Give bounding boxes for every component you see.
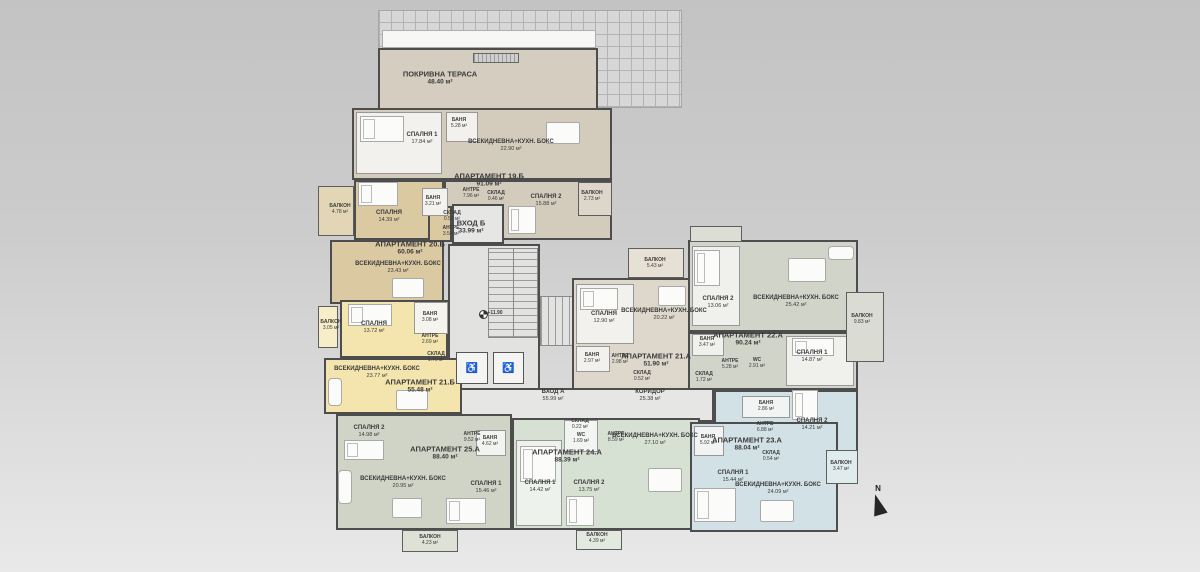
terrace-label-name: ПОКРИВНА ТЕРАСА xyxy=(403,70,477,79)
apt25-title-area: 88.40 м² xyxy=(410,454,480,462)
apt19-hall-label-area: 7.96 м² xyxy=(463,193,480,199)
apt21b-title: АПАРТАМЕНТ 21.Б55.48 м² xyxy=(385,378,455,395)
entrance-a-label-area: 55.99 м² xyxy=(542,396,565,403)
apt21a-storage-label-area: 0.52 м² xyxy=(633,376,651,382)
apt24-title-area: 88.39 м² xyxy=(532,457,602,465)
apt24-balcony-label: БАЛКОН4.39 м² xyxy=(586,532,607,544)
apt23-bath2-label: БАНЯ2.86 м² xyxy=(758,400,774,412)
apt23-bedroom1-label-name: СПАЛНЯ 1 xyxy=(718,470,749,477)
sofa-icon xyxy=(338,470,352,504)
apt22-wc-label-area: 2.91 м² xyxy=(749,363,765,369)
apt25-hall-label-area: 9.52 м² xyxy=(464,437,481,443)
apt22-bedroom2-label-name: СПАЛНЯ 2 xyxy=(703,296,734,303)
apt25-title-name: АПАРТАМЕНТ 25.А xyxy=(410,445,480,454)
apt21a-bedroom-label-name: СПАЛНЯ xyxy=(591,311,617,318)
level-label-name: +11.90 xyxy=(487,310,502,316)
apt23-hall-label-area: 6.88 м² xyxy=(757,427,774,433)
apt24-balcony-label-area: 4.39 м² xyxy=(586,538,607,544)
apt21b-bath-label: БАНЯ3.08 м² xyxy=(422,311,438,323)
apt19-living-label-name: ВСЕКИДНЕВНА+КУХН. БОКС xyxy=(468,139,554,146)
elevator-1: ♿ xyxy=(456,352,488,384)
entrance-a-label-name: ВХОД А xyxy=(542,389,565,396)
bed-icon xyxy=(566,496,594,526)
table-icon xyxy=(392,278,424,298)
table-icon xyxy=(788,258,826,282)
apt24-living-label-name: ВСЕКИДНЕВНА+КУХН. БОКС xyxy=(612,433,698,440)
corridor-label-area: 25.38 м² xyxy=(635,396,665,403)
apt25-balcony-label: БАЛКОН4.23 м² xyxy=(419,534,440,546)
apt21a-bedroom-label-area: 12.90 м² xyxy=(591,318,617,325)
apt25-hall-label: АНТРЕ9.52 м² xyxy=(464,431,481,443)
floor-plan: ♿♿ПОКРИВНА ТЕРАСА48.40 м²СПАЛНЯ 117.84 м… xyxy=(0,0,1200,572)
apt20-balcony-label-area: 4.78 м² xyxy=(329,209,350,215)
apt24-title-name: АПАРТАМЕНТ 24.А xyxy=(532,448,602,457)
apt25-balcony-label-area: 4.23 м² xyxy=(419,540,440,546)
apt19-living-label: ВСЕКИДНЕВНА+КУХН. БОКС22.90 м² xyxy=(468,139,554,153)
apt22-bath-label: БАНЯ3.47 м² xyxy=(699,336,715,348)
apt21b-living-label-name: ВСЕКИДНЕВНА+КУХН. БОКС xyxy=(334,366,420,373)
bed-icon xyxy=(446,498,486,524)
apt24-bedroom1-label: СПАЛНЯ 114.42 м² xyxy=(525,480,556,494)
apt21a-bath-label: БАНЯ2.97 м² xyxy=(584,352,600,364)
apt20-living-label-name: ВСЕКИДНЕВНА+КУХН. БОКС xyxy=(355,261,441,268)
apt20-title-area: 60.06 м² xyxy=(375,249,445,257)
apt20-bedroom-label-name: СПАЛНЯ xyxy=(376,210,402,217)
bed-icon xyxy=(358,182,398,206)
apt24-bedroom1-label-area: 14.42 м² xyxy=(525,487,556,494)
north-label: N xyxy=(866,484,890,493)
apt19-balcony-label-area: 2.73 м² xyxy=(581,196,602,202)
entrance-a-label: ВХОД А55.99 м² xyxy=(542,389,565,403)
table-icon xyxy=(648,468,682,492)
bed-icon xyxy=(694,250,720,286)
corridor-label: КОРИДОР25.38 м² xyxy=(635,389,665,403)
apt24-storage-label: СКЛАД0.22 м² xyxy=(571,418,589,430)
apt21a-title: АПАРТАМЕНТ 21.А51.90 м² xyxy=(621,352,691,369)
north-arrow-icon xyxy=(868,492,887,516)
apt22-bedroom1-label: СПАЛНЯ 114.87 м² xyxy=(797,350,828,364)
apt21a-bath-label-area: 2.97 м² xyxy=(584,358,600,364)
bed-icon xyxy=(344,440,384,460)
apt21b-bedroom-label-area: 13.72 м² xyxy=(361,328,387,335)
sofa-icon xyxy=(328,378,342,406)
apt22-storage-label: СКЛАД1.72 м² xyxy=(695,371,713,383)
apt22-living-label: ВСЕКИДНЕВНА+КУХН. БОКС25.42 м² xyxy=(753,295,839,309)
terrace-label-area: 48.40 м² xyxy=(403,79,477,87)
apt23-title-name: АПАРТАМЕНТ 23.А xyxy=(712,436,782,445)
bed-icon xyxy=(580,288,618,310)
apt20-bath-label: БАНЯ3.21 м² xyxy=(425,195,441,207)
sofa-icon xyxy=(828,246,854,260)
apt25-bedroom1-label-area: 15.46 м² xyxy=(471,488,502,495)
apt22-bath-label-area: 3.47 м² xyxy=(699,342,715,348)
apt21a-bedroom-label: СПАЛНЯ12.90 м² xyxy=(591,311,617,325)
apt19-bedroom2-label: СПАЛНЯ 215.88 м² xyxy=(531,194,562,208)
apt24-title: АПАРТАМЕНТ 24.А88.39 м² xyxy=(532,448,602,465)
table-icon xyxy=(658,286,686,306)
level-label: +11.90 xyxy=(487,310,502,316)
apt24-bedroom2-label-area: 13.75 м² xyxy=(574,487,605,494)
apt21b-hall-label-area: 2.69 м² xyxy=(422,339,439,345)
apt22-balcony xyxy=(846,292,884,362)
apt21a-living-label: ВСЕКИДНЕВНА+КУХН. БОКС20.22 м² xyxy=(621,308,707,322)
apt21a-balcony-label: БАЛКОН5.43 м² xyxy=(644,257,665,269)
apt23-hall-label: АНТРЕ6.88 м² xyxy=(757,421,774,433)
apt19-bedroom1-label-area: 17.84 м² xyxy=(407,139,438,146)
bed-icon xyxy=(508,206,536,234)
apt22-storage-label-area: 1.72 м² xyxy=(695,377,713,383)
apt25-living-label: ВСЕКИДНЕВНА+КУХН. БОКС20.95 м² xyxy=(360,476,446,490)
bed-icon xyxy=(694,488,736,522)
apt23-bath2-label-area: 2.86 м² xyxy=(758,406,774,412)
apt20-bedroom-label-area: 14.39 м² xyxy=(376,217,402,224)
apt19-title: АПАРТАМЕНТ 19.Б91.09 м² xyxy=(454,172,524,189)
terrace-strip xyxy=(382,30,596,48)
level-marker-icon xyxy=(479,310,488,319)
apt23-bedroom2-label: СПАЛНЯ 214.21 м² xyxy=(797,418,828,432)
apt20-balcony-label: БАЛКОН4.78 м² xyxy=(329,203,350,215)
apt20-bath-label-area: 3.21 м² xyxy=(425,201,441,207)
apt20-living-label-area: 23.43 м² xyxy=(355,268,441,275)
apt23-living-label: ВСЕКИДНЕВНА+КУХН. БОКС24.09 м² xyxy=(735,482,821,496)
entrance-b-label-area: 33.99 м² xyxy=(457,228,486,236)
apt22-wc-label: WC2.91 м² xyxy=(749,357,765,369)
apt22-bedroom1-label-name: СПАЛНЯ 1 xyxy=(797,350,828,357)
apt24-storage-label-area: 0.22 м² xyxy=(571,424,589,430)
apt19-bedroom1-label: СПАЛНЯ 117.84 м² xyxy=(407,132,438,146)
apt22-hall-label-area: 5.28 м² xyxy=(722,364,739,370)
apt23-living-label-name: ВСЕКИДНЕВНА+КУХН. БОКС xyxy=(735,482,821,489)
stairs-upper xyxy=(488,248,538,338)
apt20-title: АПАРТАМЕНТ 20.Б60.06 м² xyxy=(375,240,445,257)
apt21b-bedroom-label-name: СПАЛНЯ xyxy=(361,321,387,328)
apt23-balcony-label-area: 3.47 м² xyxy=(830,466,851,472)
apt25-bedroom2-label: СПАЛНЯ 214.98 м² xyxy=(354,425,385,439)
apt23-balcony-label: БАЛКОН3.47 м² xyxy=(830,460,851,472)
apt25-bedroom1-label-name: СПАЛНЯ 1 xyxy=(471,481,502,488)
apt21b-balcony-label-area: 3.05 м² xyxy=(320,325,341,331)
apt22-bedroom2-label-area: 13.06 м² xyxy=(703,303,734,310)
apt25-living-label-area: 20.95 м² xyxy=(360,483,446,490)
apt22-title-name: АПАРТАМЕНТ 22.А xyxy=(713,331,783,340)
apt19-balcony-label: БАЛКОН2.73 м² xyxy=(581,190,602,202)
apt21b-hall-label: АНТРЕ2.69 м² xyxy=(422,333,439,345)
apt22-bedroom2-label: СПАЛНЯ 213.06 м² xyxy=(703,296,734,310)
apt23-bedroom2-label-name: СПАЛНЯ 2 xyxy=(797,418,828,425)
floor-plan-canvas: ♿♿ПОКРИВНА ТЕРАСА48.40 м²СПАЛНЯ 117.84 м… xyxy=(0,0,1200,572)
apt22-bedroom1-label-area: 14.87 м² xyxy=(797,357,828,364)
apt23-bedroom2-label-area: 14.21 м² xyxy=(797,425,828,432)
bed-icon xyxy=(360,116,404,142)
apt25-living-label-name: ВСЕКИДНЕВНА+КУХН. БОКС xyxy=(360,476,446,483)
apt19-bedroom1-label-name: СПАЛНЯ 1 xyxy=(407,132,438,139)
apt23-storage-label: СКЛАД0.54 м² xyxy=(762,450,780,462)
apt22-title: АПАРТАМЕНТ 22.А90.24 м² xyxy=(713,331,783,348)
apt19-bedroom2-label-name: СПАЛНЯ 2 xyxy=(531,194,562,201)
apt24-bedroom1-label-name: СПАЛНЯ 1 xyxy=(525,480,556,487)
apt21a-living-label-area: 20.22 м² xyxy=(621,315,707,322)
apt22-balcony-label: БАЛКОН9.83 м² xyxy=(851,313,872,325)
apt20-title-name: АПАРТАМЕНТ 20.Б xyxy=(375,240,445,249)
apt25-bedroom2-label-area: 14.98 м² xyxy=(354,432,385,439)
apt19-hall-label: АНТРЕ7.96 м² xyxy=(463,187,480,199)
apt19-bath-label-area: 5.28 м² xyxy=(451,123,467,129)
apt25-bedroom2-label-name: СПАЛНЯ 2 xyxy=(354,425,385,432)
apt22-living-label-area: 25.42 м² xyxy=(753,302,839,309)
apt25-bath-label: БАНЯ4.62 м² xyxy=(482,435,498,447)
apt24-wc-label: WC1.69 м² xyxy=(573,432,589,444)
apt21b-storage-label-area: 1.70 м² xyxy=(427,357,445,363)
apt22-living-label-name: ВСЕКИДНЕВНА+КУХН. БОКС xyxy=(753,295,839,302)
apt21b-title-name: АПАРТАМЕНТ 21.Б xyxy=(385,378,455,387)
apt23-living-label-area: 24.09 м² xyxy=(735,489,821,496)
apt21a-title-area: 51.90 м² xyxy=(621,361,691,369)
apt21a-storage-label: СКЛАД0.52 м² xyxy=(633,370,651,382)
apt19-storage-label: СКЛАД0.46 м² xyxy=(487,190,505,202)
apt19-title-name: АПАРТАМЕНТ 19.Б xyxy=(454,172,524,181)
apt22-balcony-label-area: 9.83 м² xyxy=(851,319,872,325)
elevator-2: ♿ xyxy=(493,352,524,384)
apt24-living-label: ВСЕКИДНЕВНА+КУХН. БОКС27.10 м² xyxy=(612,433,698,447)
apt24-bedroom2-label-name: СПАЛНЯ 2 xyxy=(574,480,605,487)
apt21b-title-area: 55.48 м² xyxy=(385,387,455,395)
apt19-bedroom2-label-area: 15.88 м² xyxy=(531,201,562,208)
terrace-vent xyxy=(473,53,519,63)
apt22-top-balcony xyxy=(690,226,742,242)
apt24-wc-label-area: 1.69 м² xyxy=(573,438,589,444)
table-icon xyxy=(760,500,794,522)
apt21b-balcony-label: БАЛКОН3.05 м² xyxy=(320,319,341,331)
apt22-title-area: 90.24 м² xyxy=(713,340,783,348)
terrace-label: ПОКРИВНА ТЕРАСА48.40 м² xyxy=(403,70,477,87)
apt25-bath-label-area: 4.62 м² xyxy=(482,441,498,447)
apt25-bedroom1-label: СПАЛНЯ 115.46 м² xyxy=(471,481,502,495)
apt19-living-label-area: 22.90 м² xyxy=(468,146,554,153)
apt24-living-label-area: 27.10 м² xyxy=(612,440,698,447)
table-icon xyxy=(392,498,422,518)
apt21b-bedroom-label: СПАЛНЯ13.72 м² xyxy=(361,321,387,335)
apt22-hall-label: АНТРЕ5.28 м² xyxy=(722,358,739,370)
corridor-label-name: КОРИДОР xyxy=(635,389,665,396)
apt21b-storage-label: СКЛАД1.70 м² xyxy=(427,351,445,363)
apt24-bedroom2-label: СПАЛНЯ 213.75 м² xyxy=(574,480,605,494)
bed-icon xyxy=(792,390,818,420)
entrance-b-label: ВХОД Б33.99 м² xyxy=(457,219,486,236)
apt21a-balcony-label-area: 5.43 м² xyxy=(644,263,665,269)
apt21b-bath-label-area: 3.08 м² xyxy=(422,317,438,323)
north-arrow: N xyxy=(866,484,890,515)
apt19-bath-label: БАНЯ5.28 м² xyxy=(451,117,467,129)
apt25-title: АПАРТАМЕНТ 25.А88.40 м² xyxy=(410,445,480,462)
apt21a-living-label-name: ВСЕКИДНЕВНА+КУХН. БОКС xyxy=(621,308,707,315)
apt23-storage-label-area: 0.54 м² xyxy=(762,456,780,462)
apt20-living-label: ВСЕКИДНЕВНА+КУХН. БОКС23.43 м² xyxy=(355,261,441,275)
entrance-b-label-name: ВХОД Б xyxy=(457,219,486,228)
apt19-storage-label-area: 0.46 м² xyxy=(487,196,505,202)
apt21a-title-name: АПАРТАМЕНТ 21.А xyxy=(621,352,691,361)
apt20-bedroom-label: СПАЛНЯ14.39 м² xyxy=(376,210,402,224)
